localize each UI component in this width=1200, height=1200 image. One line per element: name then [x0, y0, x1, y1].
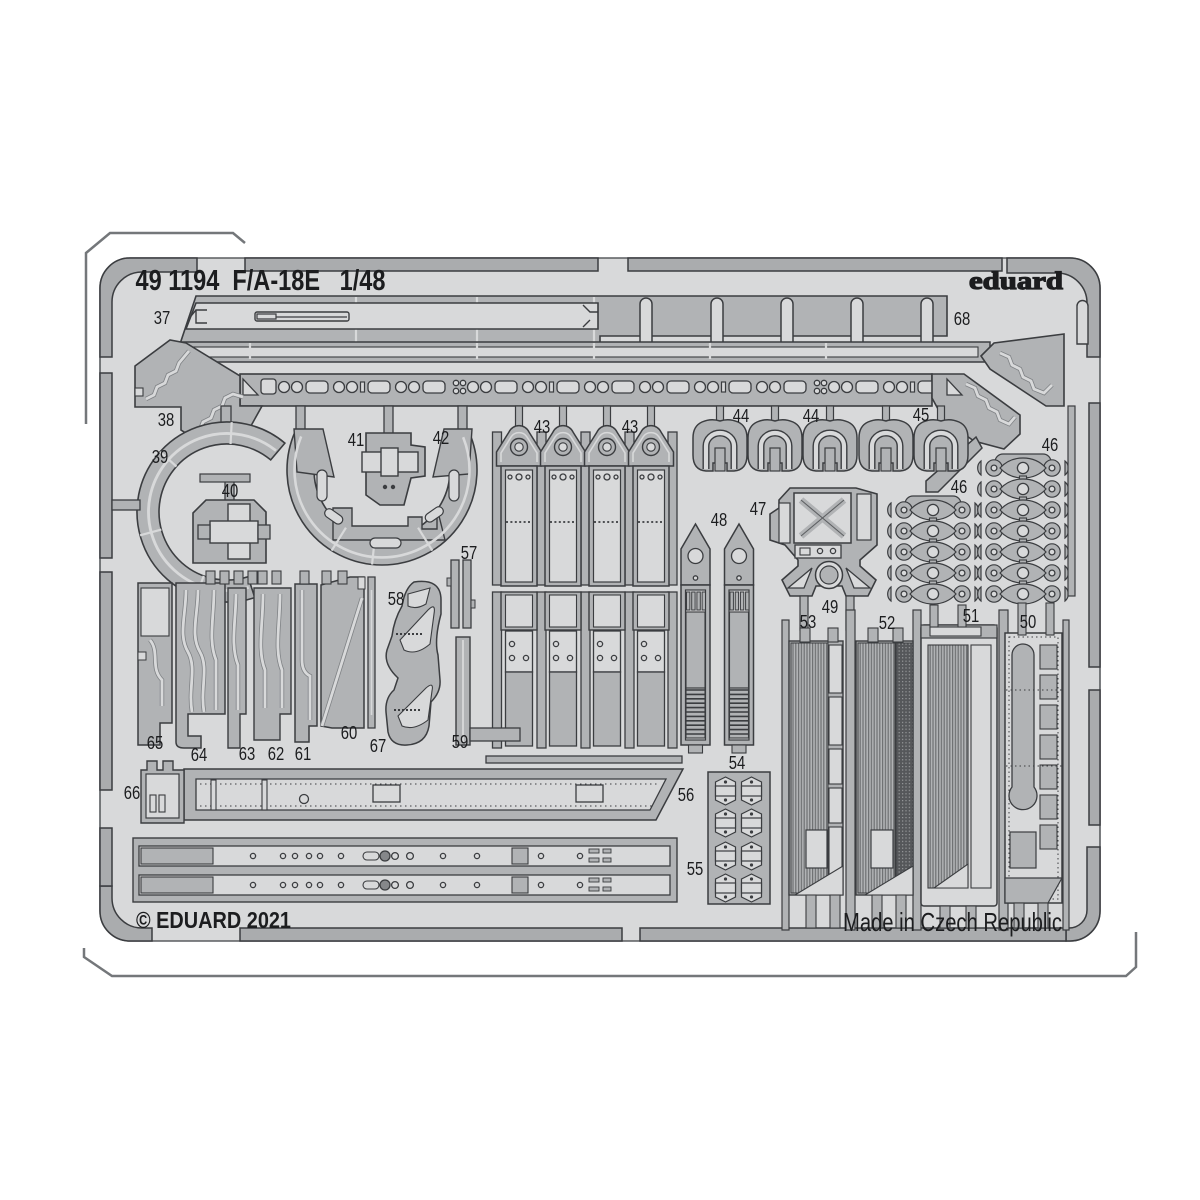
svg-text:56: 56 [678, 785, 695, 805]
svg-text:57: 57 [461, 543, 478, 563]
svg-text:49: 49 [822, 597, 839, 617]
svg-text:48: 48 [711, 510, 728, 530]
svg-text:66: 66 [124, 783, 141, 803]
svg-text:39: 39 [152, 447, 169, 467]
svg-text:59: 59 [452, 732, 469, 752]
svg-text:40: 40 [222, 481, 239, 501]
svg-text:53: 53 [800, 612, 817, 632]
svg-text:46: 46 [1042, 435, 1059, 455]
svg-text:61: 61 [295, 744, 312, 764]
svg-text:42: 42 [433, 428, 450, 448]
svg-text:37: 37 [154, 308, 171, 328]
svg-text:46: 46 [951, 477, 968, 497]
svg-text:44: 44 [803, 406, 820, 426]
svg-text:41: 41 [348, 430, 365, 450]
svg-text:64: 64 [191, 745, 208, 765]
svg-text:52: 52 [879, 613, 896, 633]
svg-text:38: 38 [158, 410, 175, 430]
svg-text:43: 43 [534, 417, 551, 437]
svg-text:55: 55 [687, 859, 704, 879]
svg-text:50: 50 [1020, 612, 1037, 632]
svg-text:Made in Czech Republic: Made in Czech Republic [843, 907, 1062, 937]
svg-text:eduard: eduard [969, 268, 1063, 295]
svg-text:51: 51 [963, 606, 980, 626]
svg-text:47: 47 [750, 499, 767, 519]
svg-text:58: 58 [388, 589, 405, 609]
svg-text:45: 45 [913, 405, 930, 425]
svg-text:60: 60 [341, 723, 358, 743]
svg-text:44: 44 [733, 406, 750, 426]
svg-text:© EDUARD 2021: © EDUARD 2021 [136, 907, 291, 933]
svg-text:54: 54 [729, 753, 746, 773]
svg-text:65: 65 [147, 733, 164, 753]
svg-text:63: 63 [239, 744, 256, 764]
svg-text:62: 62 [268, 744, 285, 764]
svg-text:49 1194 F/A-18E 1/48: 49 1194 F/A-18E 1/48 [136, 265, 386, 297]
svg-text:43: 43 [622, 417, 639, 437]
svg-text:67: 67 [370, 736, 387, 756]
svg-text:68: 68 [954, 309, 971, 329]
